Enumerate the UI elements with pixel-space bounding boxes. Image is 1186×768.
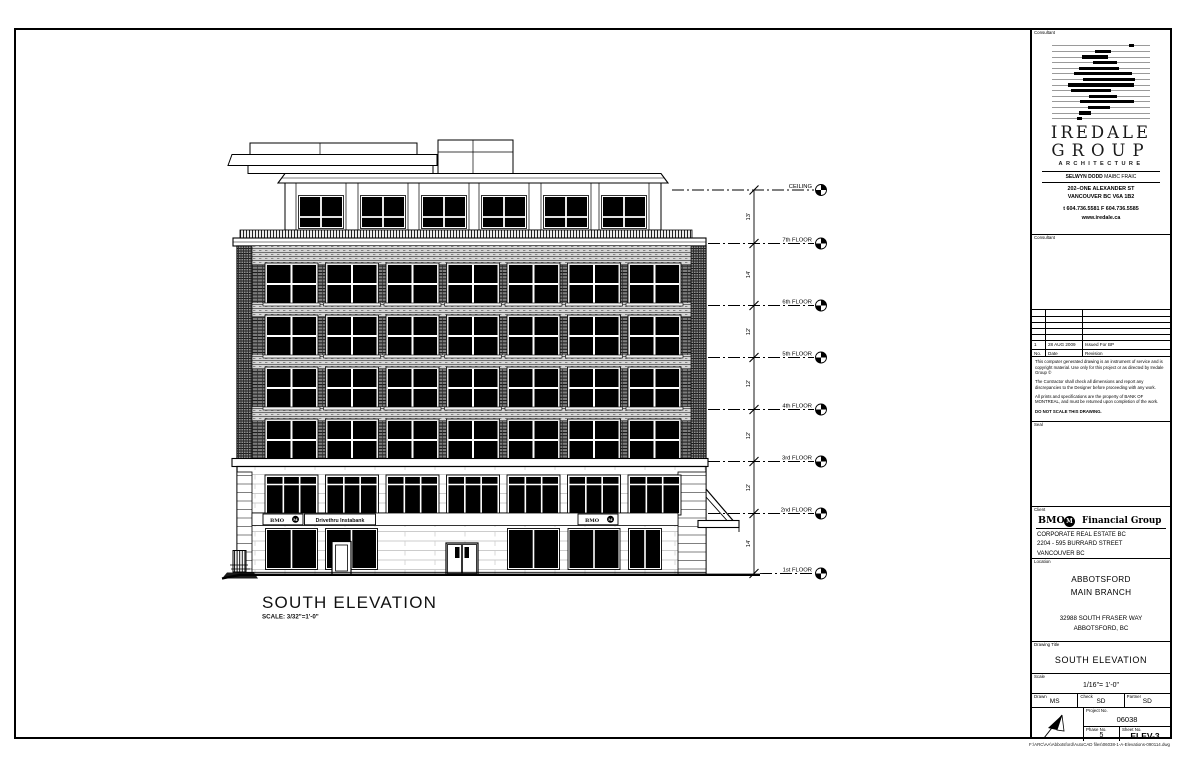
- scale-value: 1/16"= 1'-0": [1032, 682, 1170, 689]
- note-no-scale: DO NOT SCALE THIS DRAWING.: [1035, 409, 1167, 415]
- dimension-value: 12': [746, 328, 752, 336]
- revision-col-date: Date: [1046, 349, 1083, 358]
- entry-door-left: [332, 542, 351, 575]
- location-box: Location ABBOTSFORD MAIN BRANCH 32988 SO…: [1032, 559, 1170, 642]
- seventh-floor-eave: [278, 174, 668, 184]
- location-label: Location: [1034, 560, 1051, 564]
- dimension-value: 12': [746, 380, 752, 388]
- title-block: Consultant IREDALE GROUP ARCHITECTURE SE…: [1030, 28, 1172, 739]
- seal-box: Seal: [1032, 422, 1170, 507]
- window-sill: [263, 407, 320, 410]
- phase-no-value: 5: [1084, 732, 1119, 739]
- principals: SELWYN DODD MAIBC FRAIC: [1042, 174, 1160, 183]
- window-sill: [566, 303, 623, 306]
- svg-text:Drivethru Instabank: Drivethru Instabank: [316, 518, 365, 524]
- firm-contact: t 604.736.5581 F 604.736.5585 www.iredal…: [1032, 205, 1170, 222]
- datum-target-icon: [816, 306, 822, 312]
- note-copyright: This computer generated drawing is an in…: [1035, 359, 1167, 376]
- partner-value: SD: [1125, 698, 1170, 705]
- datum-target-icon: [821, 300, 827, 306]
- drawing-sheet: BMO M Drivethru Instabank BMO M: [0, 0, 1186, 768]
- window-sill: [384, 407, 441, 410]
- firm-name-line3: ARCHITECTURE: [1032, 161, 1170, 167]
- svg-text:BMO: BMO: [585, 518, 600, 524]
- window-sill: [566, 407, 623, 410]
- principal-credentials: MAIBC FRAIC: [1103, 174, 1137, 180]
- dimension-value: 14': [746, 540, 752, 548]
- dimension-value: 13': [746, 213, 752, 221]
- datum-target-icon: [821, 185, 827, 191]
- floor-label: 1st FLOOR: [783, 568, 812, 574]
- window-sill: [263, 303, 320, 306]
- client-address-line3: VANCOUVER BC: [1037, 550, 1126, 559]
- revision-row-date: 28 AUG 2009: [1046, 340, 1083, 349]
- project-name: ABBOTSFORD MAIN BRANCH: [1032, 573, 1170, 599]
- iredale-logo-icon: [1052, 43, 1150, 121]
- seventh-floor-wall: [285, 183, 661, 230]
- window-sill: [445, 407, 502, 410]
- dimension-value: 12': [746, 484, 752, 492]
- north-arrow-icon: [1032, 708, 1084, 741]
- datum-target-icon: [816, 244, 822, 250]
- note-property: All prints and specifications are the pr…: [1035, 394, 1167, 405]
- datum-target-icon: [821, 404, 827, 410]
- entry-door-double: [446, 543, 478, 575]
- window-sill: [324, 407, 381, 410]
- datum-target-icon: [821, 568, 827, 574]
- datum-target-icon: [816, 514, 822, 520]
- drawing-title-label: Drawing Title: [1034, 643, 1059, 647]
- window-sill: [263, 355, 320, 358]
- window-glass: [570, 477, 619, 513]
- firm-website: www.iredale.ca: [1032, 214, 1170, 223]
- bmo-logo-suffix: Financial Group: [1082, 516, 1161, 526]
- window-sill: [445, 355, 502, 358]
- window-sill: [626, 407, 683, 410]
- svg-text:M: M: [293, 517, 298, 522]
- elevation-drawing: BMO M Drivethru Instabank BMO M: [0, 0, 1186, 768]
- client-label: Client: [1034, 508, 1045, 512]
- revision-col-no: No.: [1032, 349, 1046, 358]
- floor-label: 7th FLOOR: [782, 238, 812, 244]
- north-arrow-cell: [1032, 708, 1084, 741]
- window-glass: [388, 477, 437, 513]
- principal-name: SELWYN DODD: [1066, 174, 1103, 180]
- credits-row: Drawn MS Check SD Partner SD: [1032, 694, 1170, 708]
- window-sill: [505, 303, 562, 306]
- project-address-line2: ABBOTSFORD, BC: [1032, 624, 1170, 633]
- partner-cell: Partner SD: [1125, 694, 1170, 707]
- check-cell: Check SD: [1078, 694, 1124, 707]
- window-sill: [324, 303, 381, 306]
- sheet-number-block: Project No. 06038 Phase No. 5 Sheet No. …: [1032, 708, 1170, 741]
- window-glass: [267, 477, 316, 513]
- divider: [1042, 171, 1160, 172]
- drawing-title-box: Drawing Title SOUTH ELEVATION: [1032, 642, 1170, 674]
- floor-label: CEILING: [789, 184, 813, 190]
- project-no-value: 06038: [1084, 715, 1170, 724]
- project-address: 32988 SOUTH FRASER WAY ABBOTSFORD, BC: [1032, 614, 1170, 633]
- floor-label: 5th FLOOR: [782, 352, 812, 358]
- datum-target-icon: [816, 358, 822, 364]
- firm-name-line1: IREDALE: [1032, 123, 1170, 142]
- firm-name-line2: GROUP: [1032, 141, 1170, 160]
- consultant-architect-box: Consultant IREDALE GROUP ARCHITECTURE SE…: [1032, 30, 1170, 235]
- spandrel-band: [252, 246, 691, 265]
- project-name-line2: MAIN BRANCH: [1032, 586, 1170, 599]
- datum-target-icon: [821, 352, 827, 358]
- file-path: F:\ARC\AA\Abbotsford\AutoCAD files\06038…: [0, 742, 1170, 747]
- sign-bmo-left: BMO M: [263, 514, 303, 525]
- bmo-roundel-icon: M: [1064, 516, 1075, 527]
- project-no-cell: Project No. 06038: [1084, 708, 1170, 727]
- general-notes: This computer generated drawing is an in…: [1032, 357, 1170, 422]
- client-address-line2: 2204 - 595 BURRARD STREET: [1037, 540, 1126, 549]
- svg-text:BMO: BMO: [270, 518, 285, 524]
- datum-target-icon: [821, 456, 827, 462]
- window-glass: [328, 477, 377, 513]
- window-sill: [505, 407, 562, 410]
- datum-target-icon: [816, 410, 822, 416]
- revision-row-description: Issued For BP: [1083, 340, 1170, 349]
- firm-address-line1: 202–ONE ALEXANDER ST: [1032, 185, 1170, 193]
- floor-label: 4th FLOOR: [782, 404, 812, 410]
- client-address-line1: CORPORATE REAL ESTATE BC: [1037, 531, 1126, 540]
- check-value: SD: [1078, 698, 1123, 705]
- bmo-logo-text: BMO: [1038, 515, 1065, 526]
- window-sill: [384, 355, 441, 358]
- revision-row-no: 1: [1032, 340, 1046, 349]
- window-sill: [445, 303, 502, 306]
- project-address-line1: 32988 SOUTH FRASER WAY: [1032, 614, 1170, 623]
- datum-target-icon: [816, 190, 822, 196]
- scale-box: Scale 1/16"= 1'-0": [1032, 674, 1170, 694]
- floor-label: 2nd FLOOR: [781, 508, 812, 514]
- scale-label: Scale: [1034, 675, 1045, 679]
- drawn-value: MS: [1032, 698, 1077, 705]
- sheet-no-value: ELEV-3: [1120, 731, 1170, 741]
- window-glass: [449, 477, 498, 513]
- datum-target-icon: [821, 238, 827, 244]
- client-address: CORPORATE REAL ESTATE BC 2204 - 595 BURR…: [1037, 531, 1126, 559]
- sign-drivethru-instabank: Drivethru Instabank: [305, 514, 376, 525]
- window-sill: [626, 303, 683, 306]
- window-sill: [384, 303, 441, 306]
- window-sill: [324, 355, 381, 358]
- window-glass: [509, 477, 558, 513]
- firm-phone: t 604.736.5581 F 604.736.5585: [1032, 205, 1170, 214]
- view-title: SOUTH ELEVATION: [262, 593, 437, 612]
- svg-text:M: M: [608, 517, 613, 522]
- dentil-band: [240, 230, 692, 238]
- view-scale-note: SCALE: 3/32"=1'-0": [262, 614, 319, 621]
- window-glass: [630, 477, 679, 513]
- window-sill: [626, 355, 683, 358]
- seal-label: Seal: [1034, 423, 1043, 427]
- roof-penthouse: [228, 140, 513, 174]
- iredale-logo-bar: [1052, 116, 1150, 122]
- client-box: Client BMO M Financial Group CORPORATE R…: [1032, 507, 1170, 559]
- window-sill: [566, 355, 623, 358]
- note-contractor: The Contractor shall check all dimension…: [1035, 379, 1167, 390]
- brick-facade: [237, 246, 706, 462]
- consultant2-label: Consultant: [1034, 236, 1055, 240]
- project-no-label: Project No.: [1086, 709, 1108, 713]
- sheet-no-cell: Sheet No. ELEV-3: [1120, 727, 1170, 741]
- datum-target-icon: [816, 462, 822, 468]
- consultant-label: Consultant: [1034, 31, 1055, 35]
- revision-table: 1 28 AUG 2009 Issued For BP No. Date Rev…: [1032, 310, 1170, 357]
- dimension-value: 14': [746, 271, 752, 279]
- revision-col-revision: Revision: [1083, 349, 1170, 358]
- sign-bmo-right: BMO M: [578, 514, 618, 525]
- firm-address: 202–ONE ALEXANDER ST VANCOUVER BC V6A 1B…: [1032, 185, 1170, 201]
- datum-target-icon: [821, 508, 827, 514]
- drawing-title-value: SOUTH ELEVATION: [1032, 655, 1170, 665]
- datum-target-icon: [816, 574, 822, 580]
- consultant-empty-box: Consultant: [1032, 235, 1170, 310]
- floor-label: 6th FLOOR: [782, 300, 812, 306]
- phase-no-cell: Phase No. 5: [1084, 727, 1120, 741]
- project-name-line1: ABBOTSFORD: [1032, 573, 1170, 586]
- firm-address-line2: VANCOUVER BC V6A 1B2: [1032, 193, 1170, 201]
- window-sill: [505, 355, 562, 358]
- drawn-cell: Drawn MS: [1032, 694, 1078, 707]
- main-cornice: [233, 238, 706, 246]
- bmo-logo: BMO M Financial Group: [1036, 515, 1166, 529]
- floor-label: 3rd FLOOR: [782, 456, 812, 462]
- dimension-value: 12': [746, 432, 752, 440]
